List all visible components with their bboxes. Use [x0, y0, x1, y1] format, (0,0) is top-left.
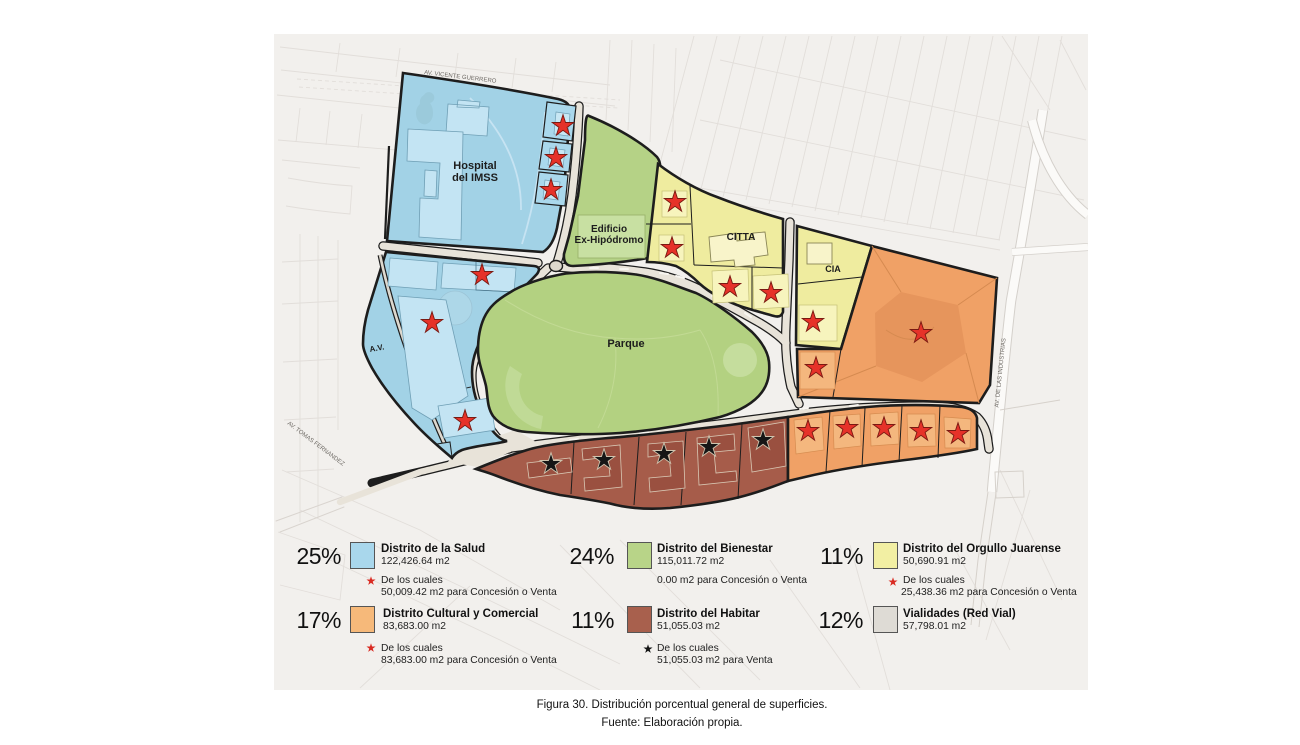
svg-text:AV. TOMAS FERNANDEZ: AV. TOMAS FERNANDEZ	[286, 421, 346, 468]
svg-text:Ex-Hipódromo: Ex-Hipódromo	[575, 235, 644, 246]
svg-text:CIA: CIA	[825, 264, 841, 274]
svg-text:del IMSS: del IMSS	[452, 172, 498, 184]
svg-text:Hospital: Hospital	[453, 160, 496, 172]
svg-text:Parque: Parque	[607, 338, 644, 350]
svg-text:Edificio: Edificio	[591, 224, 627, 235]
svg-text:CITTA: CITTA	[727, 232, 756, 243]
